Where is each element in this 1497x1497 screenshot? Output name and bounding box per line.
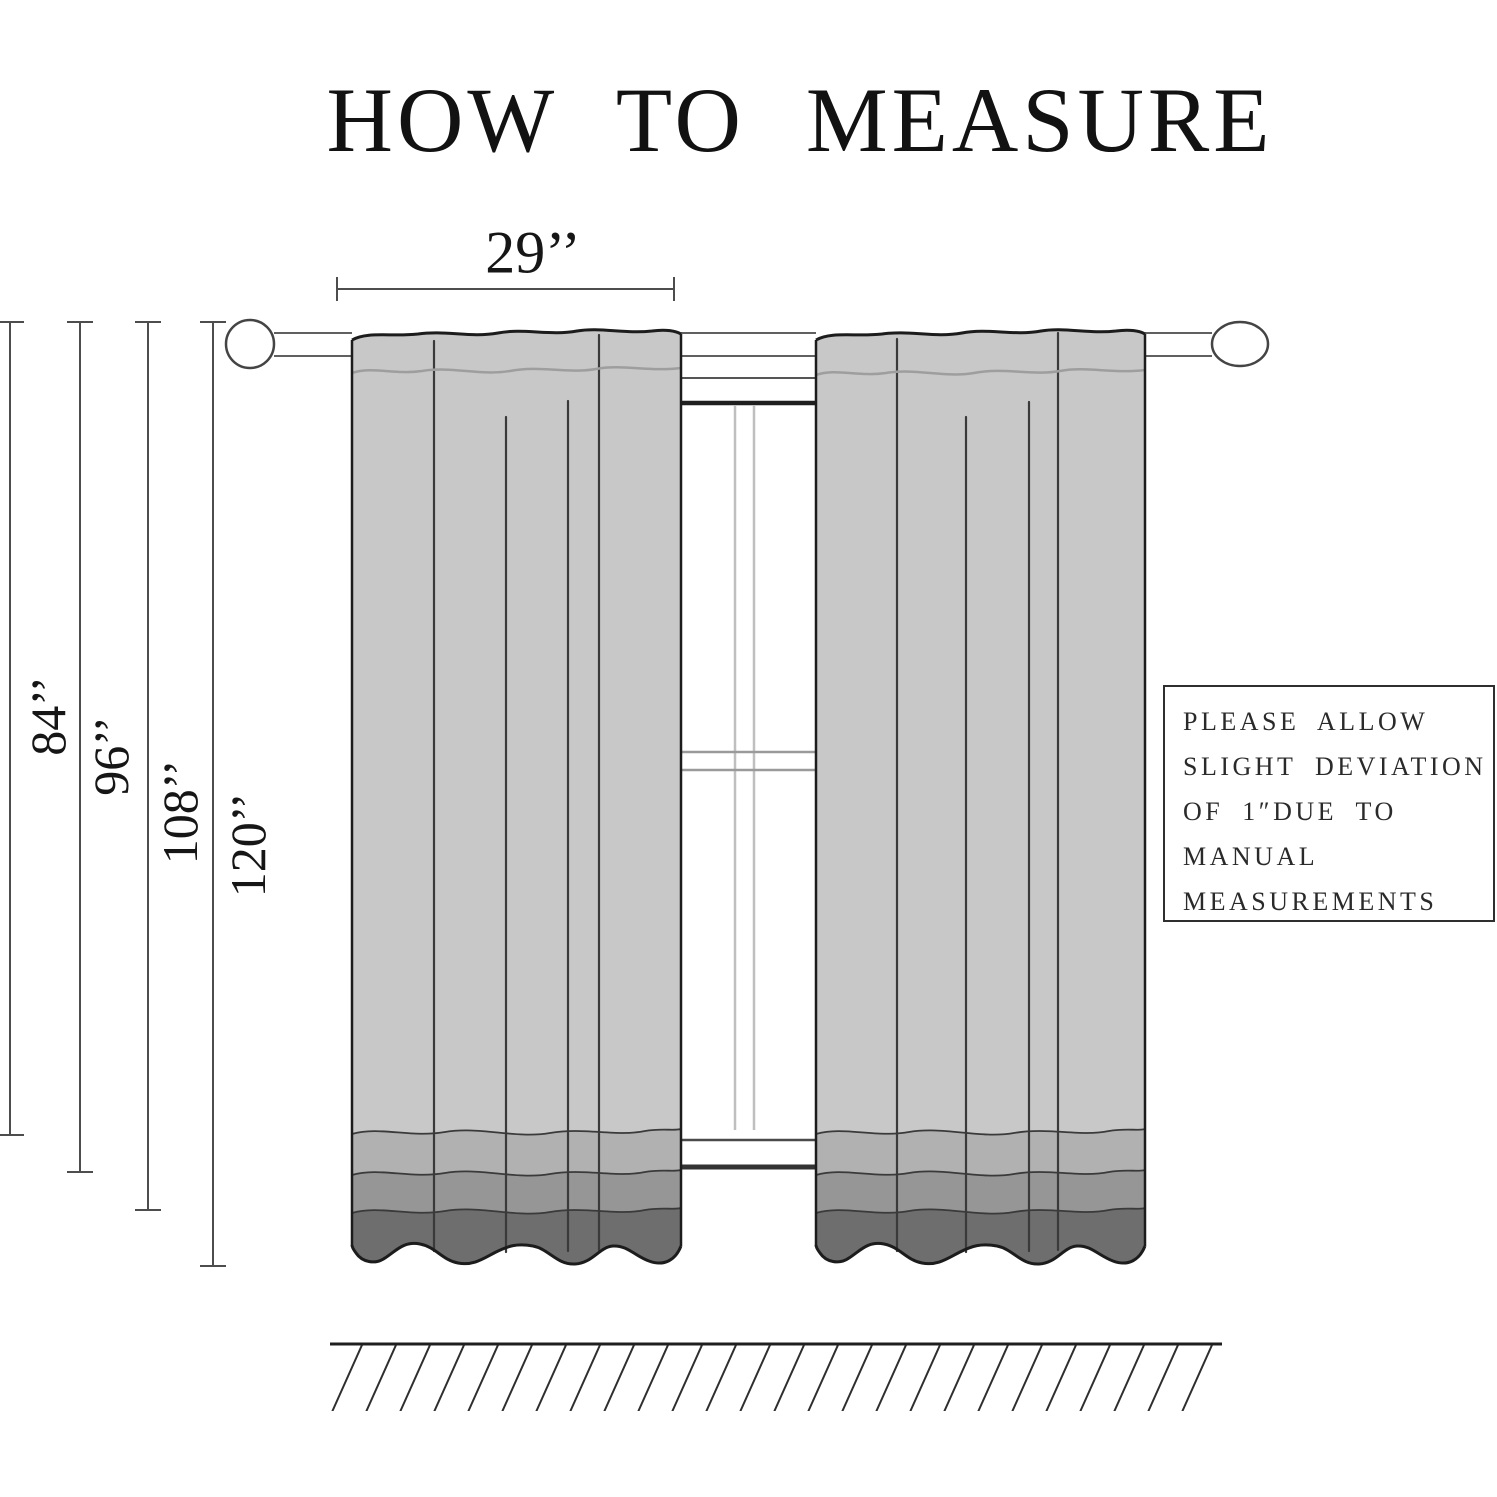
- note-line: MANUAL: [1183, 834, 1493, 879]
- note-line: OF 1″DUE TO: [1183, 789, 1493, 834]
- note-line: SLIGHT DEVIATION: [1183, 744, 1493, 789]
- right-panel-band4: [816, 1208, 1145, 1264]
- how-to-measure-infographic: HOW TO MEASURE: [0, 0, 1497, 1497]
- left-curtain-panel: [352, 330, 681, 1264]
- length-label-84: 84’’: [19, 676, 77, 756]
- right-panel-body: [816, 330, 1145, 1264]
- length-label-96: 96’’: [82, 716, 140, 796]
- right-curtain-panel: [816, 330, 1145, 1264]
- length-label-120: 120’’: [219, 793, 277, 898]
- note-line: PLEASE ALLOW: [1183, 699, 1493, 744]
- floor-hatching: [300, 1344, 1222, 1411]
- window: [678, 378, 819, 1167]
- panel-width-label: 29’’: [485, 219, 581, 288]
- left-panel-body: [352, 330, 681, 1264]
- left-finial: [226, 320, 274, 368]
- left-panel-band4: [352, 1208, 681, 1264]
- deviation-note-box: PLEASE ALLOW SLIGHT DEVIATION OF 1″DUE T…: [1163, 685, 1495, 922]
- right-finial: [1212, 322, 1268, 366]
- length-label-108: 108’’: [151, 760, 209, 865]
- note-line: MEASUREMENTS: [1183, 879, 1493, 924]
